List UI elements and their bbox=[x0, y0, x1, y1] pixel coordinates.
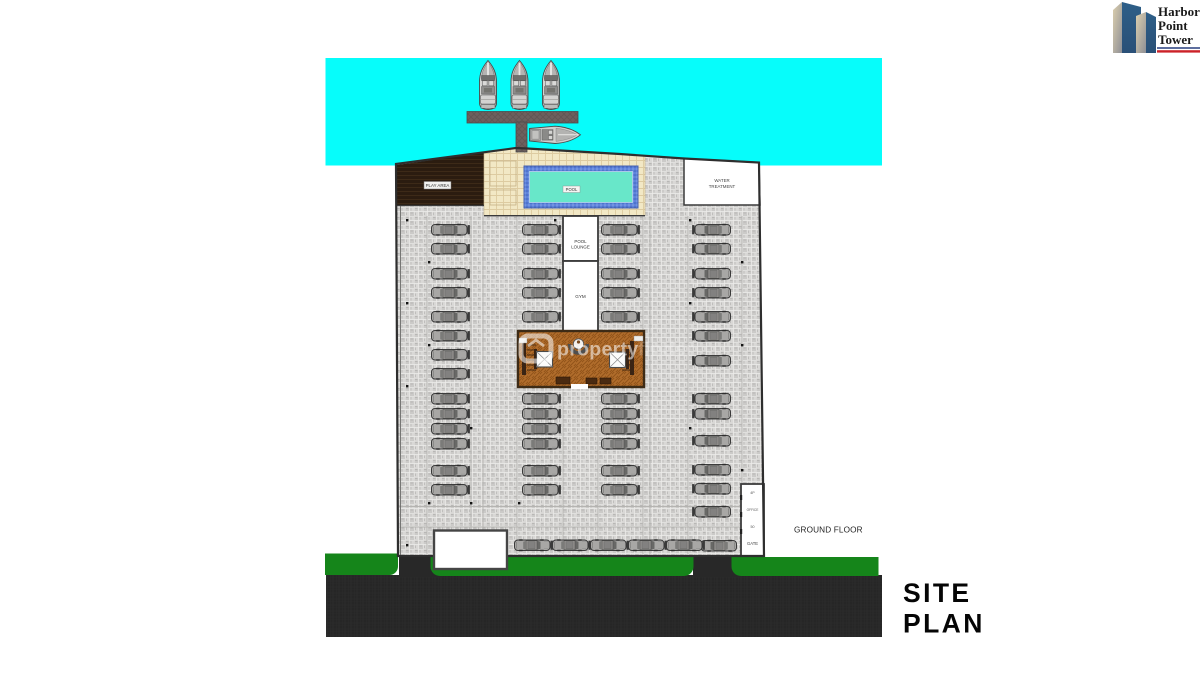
svg-text:LOUNGE: LOUNGE bbox=[571, 245, 590, 250]
svg-text:Point: Point bbox=[1158, 18, 1188, 33]
svg-text:OFFICE: OFFICE bbox=[747, 508, 759, 512]
svg-text:POOL: POOL bbox=[566, 187, 578, 192]
svg-text:POOL: POOL bbox=[574, 239, 587, 244]
svg-text:PLAN: PLAN bbox=[903, 609, 985, 639]
svg-text:GROUND FLOOR: GROUND FLOOR bbox=[794, 526, 863, 535]
svg-text:property: property bbox=[557, 339, 639, 361]
svg-text:GYM: GYM bbox=[575, 294, 586, 299]
svg-text:Tower: Tower bbox=[1158, 32, 1193, 47]
svg-text:TREATMENT: TREATMENT bbox=[709, 184, 736, 189]
svg-text:SITE: SITE bbox=[903, 578, 972, 608]
svg-text:PLAY AREA: PLAY AREA bbox=[426, 183, 450, 188]
svg-text:GATE: GATE bbox=[747, 541, 758, 546]
svg-text:finder: finder bbox=[638, 339, 694, 361]
svg-text:WATER: WATER bbox=[714, 178, 729, 183]
svg-text:4P: 4P bbox=[750, 491, 755, 495]
svg-text:50: 50 bbox=[751, 525, 755, 529]
svg-text:Harbor: Harbor bbox=[1158, 4, 1200, 19]
